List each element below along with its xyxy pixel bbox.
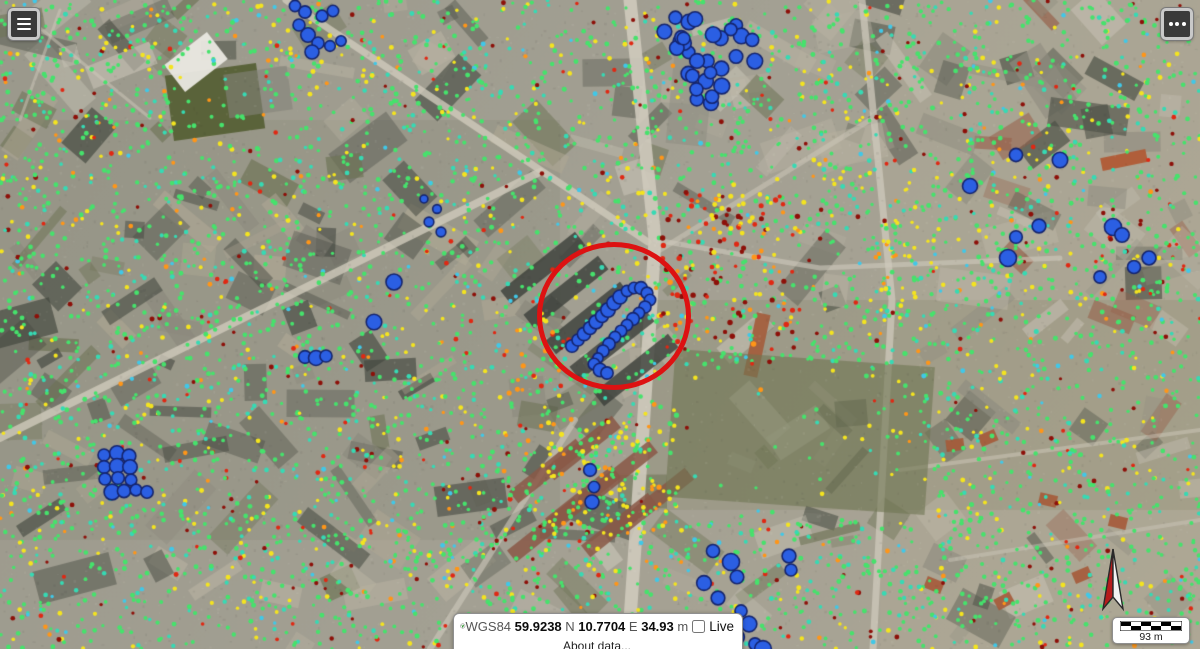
- map-viewport: 93 m WGS84 59.9238 N 10.7704 E 34.93 m L…: [0, 0, 1200, 649]
- map-canvas[interactable]: [0, 0, 1200, 649]
- north-arrow-icon: [1100, 547, 1126, 615]
- scale-bar: 93 m: [1112, 617, 1190, 644]
- longitude-value: 10.7704: [578, 619, 625, 634]
- menu-button[interactable]: [8, 8, 40, 40]
- elevation-suffix: m: [677, 619, 688, 634]
- ellipsis-icon: [1169, 22, 1186, 26]
- live-checkbox[interactable]: [692, 620, 705, 633]
- coordinate-readout: WGS84 59.9238 N 10.7704 E 34.93 m: [466, 619, 689, 634]
- more-options-button[interactable]: [1161, 8, 1193, 40]
- longitude-suffix: E: [629, 619, 638, 634]
- live-label: Live: [709, 619, 734, 634]
- live-toggle[interactable]: Live: [692, 619, 734, 634]
- scale-bar-label: 93 m: [1139, 632, 1162, 643]
- status-bar: WGS84 59.9238 N 10.7704 E 34.93 m Live A…: [453, 613, 743, 649]
- latitude-suffix: N: [565, 619, 574, 634]
- elevation-value: 34.93: [641, 619, 674, 634]
- scale-bar-checker: [1120, 621, 1182, 631]
- latitude-value: 59.9238: [515, 619, 562, 634]
- about-data-link[interactable]: About data...: [563, 639, 631, 649]
- datum-label: WGS84: [466, 619, 512, 634]
- hamburger-icon: [17, 18, 31, 31]
